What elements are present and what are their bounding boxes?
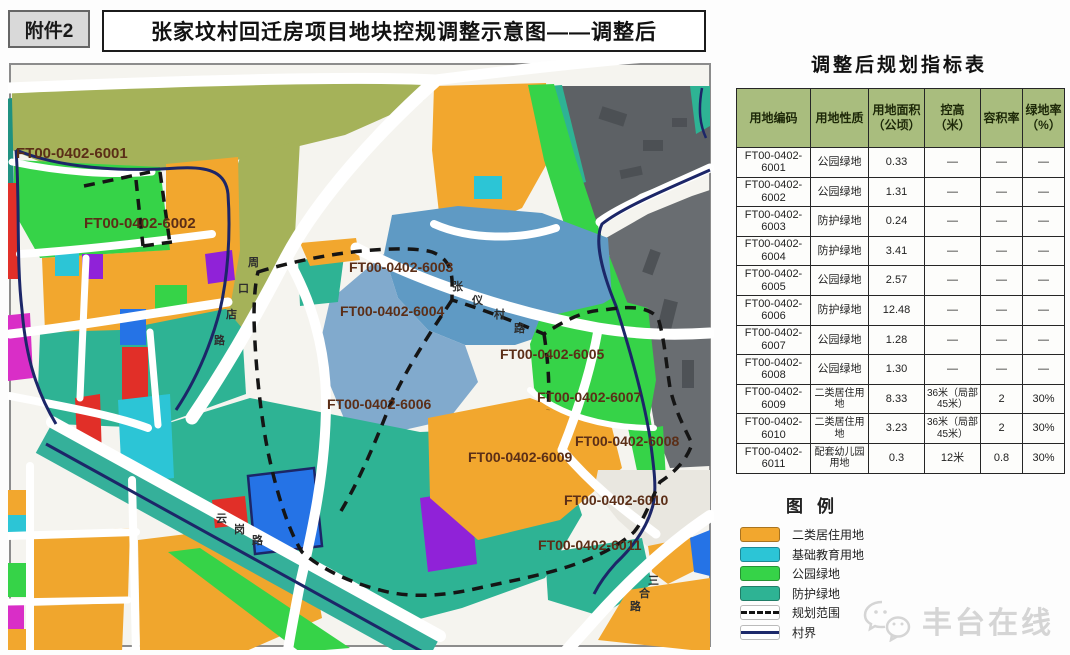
cell-land-nature: 二类居住用地 [811, 384, 869, 414]
cell-far: 2 [981, 384, 1023, 414]
road-label-char: 云 [216, 512, 227, 525]
wechat-icon [862, 598, 914, 642]
road-label-char: 路 [630, 599, 642, 613]
road-label-char: 三 [648, 574, 659, 587]
cell-far: — [981, 148, 1023, 178]
cell-green-ratio: — [1023, 325, 1065, 355]
cell-far: 2 [981, 414, 1023, 444]
cell-height-limit: — [925, 295, 981, 325]
cell-green-ratio: — [1023, 355, 1065, 385]
legend-item: 公园绿地 [740, 564, 1060, 584]
parcel-orange-bl1 [26, 528, 130, 602]
cell-green-ratio: 30% [1023, 414, 1065, 444]
legend-title: 图例 [762, 492, 872, 517]
cell-far: — [981, 355, 1023, 385]
parcel-green-edge [8, 563, 28, 597]
cell-far: — [981, 266, 1023, 296]
cell-far: — [981, 236, 1023, 266]
table-row: FT00-0402-6003防护绿地0.24——— [737, 207, 1065, 237]
cell-land-code: FT00-0402-6007 [737, 325, 811, 355]
cell-green-ratio: — [1023, 148, 1065, 178]
page: { "attachment_label": "附件2", "title": "张… [0, 0, 1070, 654]
parcel-magenta [8, 313, 33, 382]
legend-label: 二类居住用地 [792, 526, 864, 543]
cell-land-code: FT00-0402-6010 [737, 414, 811, 444]
cell-green-ratio: 30% [1023, 384, 1065, 414]
table-row: FT00-0402-6005公园绿地2.57——— [737, 266, 1065, 296]
parcel-label: FT00-0402-6006 [327, 396, 432, 412]
cell-land-nature: 防护绿地 [811, 295, 869, 325]
cell-land-nature: 防护绿地 [811, 236, 869, 266]
road-label-char: 村 [494, 307, 505, 321]
cell-land-code: FT00-0402-6011 [737, 443, 811, 473]
parcel-orange-bl2 [30, 603, 124, 650]
column-header: 容积率 [981, 89, 1023, 148]
cell-land-nature: 公园绿地 [811, 325, 869, 355]
table-body: FT00-0402-6001公园绿地0.33———FT00-0402-6002公… [737, 148, 1065, 474]
legend-swatch [740, 547, 780, 562]
parcel-orange-edge1 [8, 490, 26, 516]
legend-label: 防护绿地 [792, 585, 840, 602]
cell-height-limit: — [925, 266, 981, 296]
attachment-label: 附件2 [8, 10, 90, 48]
road-label-char: 周 [248, 256, 259, 269]
road-label-char: 路 [214, 333, 226, 347]
cell-far: — [981, 177, 1023, 207]
road-label-char: 合 [639, 586, 651, 600]
cell-land-code: FT00-0402-6003 [737, 207, 811, 237]
legend-label: 公园绿地 [792, 565, 840, 582]
legend-item: 二类居住用地 [740, 525, 1060, 545]
parcel-label: FT00-0402-6004 [340, 303, 445, 319]
cell-land-code: FT00-0402-6001 [737, 148, 811, 178]
column-header: 绿地率（%） [1023, 89, 1065, 148]
table-row: FT00-0402-6008公园绿地1.30——— [737, 355, 1065, 385]
road-label-char: 路 [252, 533, 264, 547]
column-header: 用地性质 [811, 89, 869, 148]
cell-far: — [981, 295, 1023, 325]
cell-land-code: FT00-0402-6004 [737, 236, 811, 266]
cell-height-limit: — [925, 236, 981, 266]
cell-far: 0.8 [981, 443, 1023, 473]
legend-line-swatch [740, 625, 780, 640]
parcel-orange-edge2 [8, 629, 26, 650]
road-label-char: 店 [226, 307, 237, 321]
cell-height-limit: — [925, 355, 981, 385]
cell-land-code: FT00-0402-6009 [737, 384, 811, 414]
parcel-label: FT00-0402-6009 [468, 449, 573, 465]
cell-area: 1.31 [869, 177, 925, 207]
cell-land-nature: 公园绿地 [811, 355, 869, 385]
cell-area: 8.33 [869, 384, 925, 414]
table-title: 调整后规划指标表 [735, 50, 1063, 77]
cell-height-limit: — [925, 207, 981, 237]
cell-land-nature: 公园绿地 [811, 266, 869, 296]
legend-swatch [740, 566, 780, 581]
cell-green-ratio: — [1023, 266, 1065, 296]
legend-label: 基础教育用地 [792, 546, 864, 563]
legend-line-swatch [740, 605, 780, 620]
zoning-map-canvas: FT00-0402-6001FT00-0402-6002FT00-0402-60… [8, 60, 714, 650]
cell-area: 0.24 [869, 207, 925, 237]
indicator-table: 用地编码用地性质用地面积（公顷）控高（米）容积率绿地率（%） FT00-0402… [736, 88, 1065, 474]
cell-area: 12.48 [869, 295, 925, 325]
legend-item: 基础教育用地 [740, 545, 1060, 565]
table-row: FT00-0402-6011配套幼儿园用地0.312米0.830% [737, 443, 1065, 473]
cell-green-ratio: — [1023, 236, 1065, 266]
parcel-label: FT00-0402-6011 [538, 537, 642, 553]
parcel-label: FT00-0402-6010 [564, 492, 669, 508]
cell-area: 1.28 [869, 325, 925, 355]
cell-height-limit: 12米 [925, 443, 981, 473]
parcel-label: FT00-0402-6005 [500, 346, 605, 362]
column-header: 用地面积（公顷） [869, 89, 925, 148]
cell-area: 3.23 [869, 414, 925, 444]
cell-area: 0.3 [869, 443, 925, 473]
table-row: FT00-0402-6002公园绿地1.31——— [737, 177, 1065, 207]
legend-label: 村界 [792, 624, 816, 641]
parcel-label: FT00-0402-6003 [349, 259, 454, 275]
cell-height-limit: 36米（局部45米） [925, 414, 981, 444]
road-label-char: 口 [238, 282, 249, 295]
table-row: FT00-0402-6004防护绿地3.41——— [737, 236, 1065, 266]
road-label-char: 张 [452, 279, 464, 293]
parcel-purple-2 [205, 250, 235, 284]
cell-area: 2.57 [869, 266, 925, 296]
parcel-cyan-small-top [474, 176, 502, 199]
cell-land-nature: 配套幼儿园用地 [811, 443, 869, 473]
cell-land-nature: 公园绿地 [811, 148, 869, 178]
cell-height-limit: — [925, 177, 981, 207]
table-row: FT00-0402-6006防护绿地12.48——— [737, 295, 1065, 325]
table-header-row: 用地编码用地性质用地面积（公顷）控高（米）容积率绿地率（%） [737, 89, 1065, 148]
cell-far: — [981, 207, 1023, 237]
road-label-char: 岗 [234, 522, 245, 536]
cell-green-ratio: — [1023, 295, 1065, 325]
parcel-label: FT00-0402-6001 [16, 145, 128, 162]
parcel-red-1 [122, 347, 148, 402]
table-row: FT00-0402-6007公园绿地1.28——— [737, 325, 1065, 355]
parcel-label: FT00-0402-6002 [84, 215, 196, 232]
parcel-label: FT00-0402-6008 [575, 433, 680, 449]
parcel-label: FT00-0402-6007 [537, 389, 642, 405]
cell-land-nature: 二类居住用地 [811, 414, 869, 444]
cell-area: 1.30 [869, 355, 925, 385]
column-header: 用地编码 [737, 89, 811, 148]
road-label-char: 仪 [471, 294, 484, 307]
cell-height-limit: — [925, 325, 981, 355]
parcel-cyan-edge [8, 515, 28, 534]
cell-land-nature: 防护绿地 [811, 207, 869, 237]
cell-area: 0.33 [869, 148, 925, 178]
watermark-text: 丰台在线 [922, 598, 1054, 642]
page-title: 张家坟村回迁房项目地块控规调整示意图——调整后 [102, 10, 706, 52]
cell-green-ratio: — [1023, 207, 1065, 237]
cell-height-limit: 36米（局部45米） [925, 384, 981, 414]
cell-far: — [981, 325, 1023, 355]
legend-swatch [740, 586, 780, 601]
watermark: 丰台在线 [862, 598, 1054, 642]
cell-land-code: FT00-0402-6002 [737, 177, 811, 207]
table-row: FT00-0402-6010二类居住用地3.2336米（局部45米）230% [737, 414, 1065, 444]
cell-height-limit: — [925, 148, 981, 178]
cell-land-code: FT00-0402-6006 [737, 295, 811, 325]
cell-area: 3.41 [869, 236, 925, 266]
cell-land-code: FT00-0402-6005 [737, 266, 811, 296]
table-row: FT00-0402-6001公园绿地0.33——— [737, 148, 1065, 178]
zoning-map: FT00-0402-6001FT00-0402-6002FT00-0402-60… [8, 60, 714, 650]
table-row: FT00-0402-6009二类居住用地8.3336米（局部45米）230% [737, 384, 1065, 414]
column-header: 控高（米） [925, 89, 981, 148]
road-label-char: 路 [514, 321, 526, 335]
cell-land-nature: 公园绿地 [811, 177, 869, 207]
legend-label: 规划范围 [792, 604, 840, 621]
cell-land-code: FT00-0402-6008 [737, 355, 811, 385]
cell-green-ratio: 30% [1023, 443, 1065, 473]
cell-green-ratio: — [1023, 177, 1065, 207]
legend-swatch [740, 527, 780, 542]
